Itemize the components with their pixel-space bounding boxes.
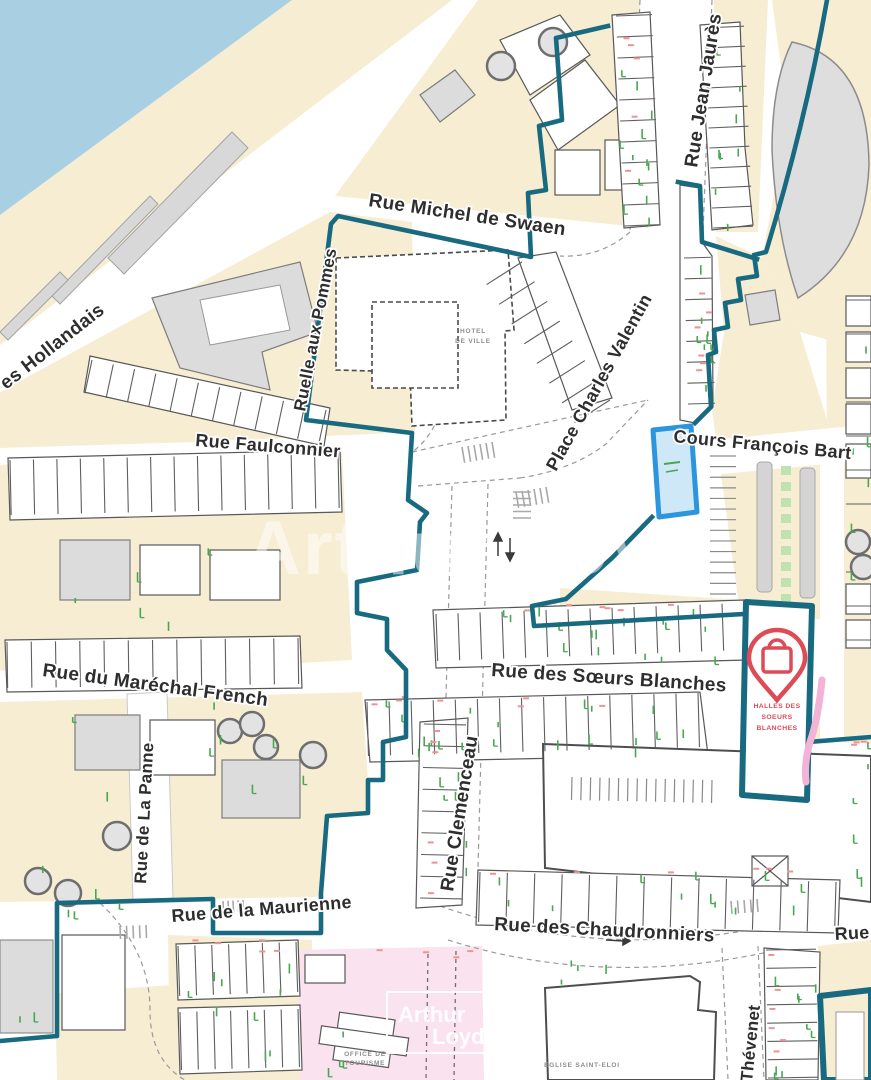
map-viewport[interactable]: es Hollandais Rue Michel de Swaen Rue Je… xyxy=(0,0,871,1080)
svg-text:BLANCHES: BLANCHES xyxy=(757,725,798,732)
watermark-center: Arthur Loyd xyxy=(246,506,703,591)
street-label-thevenet: Thévenet xyxy=(737,1004,764,1080)
office-tourisme-label-line1: OFFICE DE xyxy=(344,1051,386,1058)
hotel-de-ville-label-line2: DE VILLE xyxy=(455,338,491,345)
svg-text:HALLES DES: HALLES DES xyxy=(753,703,800,710)
street-label-rue-partial: Rue xyxy=(834,922,870,944)
hotel-de-ville-label-line1: HOTEL xyxy=(460,328,486,335)
shopping-bag-icon xyxy=(763,648,791,672)
watermark-box-line2: Loyd xyxy=(432,1024,485,1049)
street-label-soeurs: Rue des Sœurs Blanches xyxy=(491,660,728,697)
svg-text:SOEURS: SOEURS xyxy=(761,714,792,721)
map-canvas[interactable]: es Hollandais Rue Michel de Swaen Rue Je… xyxy=(0,0,871,1080)
boulevard-median xyxy=(757,462,815,603)
eglise-label: EGLISE SAINT-ELOI xyxy=(544,1062,620,1069)
office-tourisme-label-line2: TOURISME xyxy=(345,1060,386,1067)
